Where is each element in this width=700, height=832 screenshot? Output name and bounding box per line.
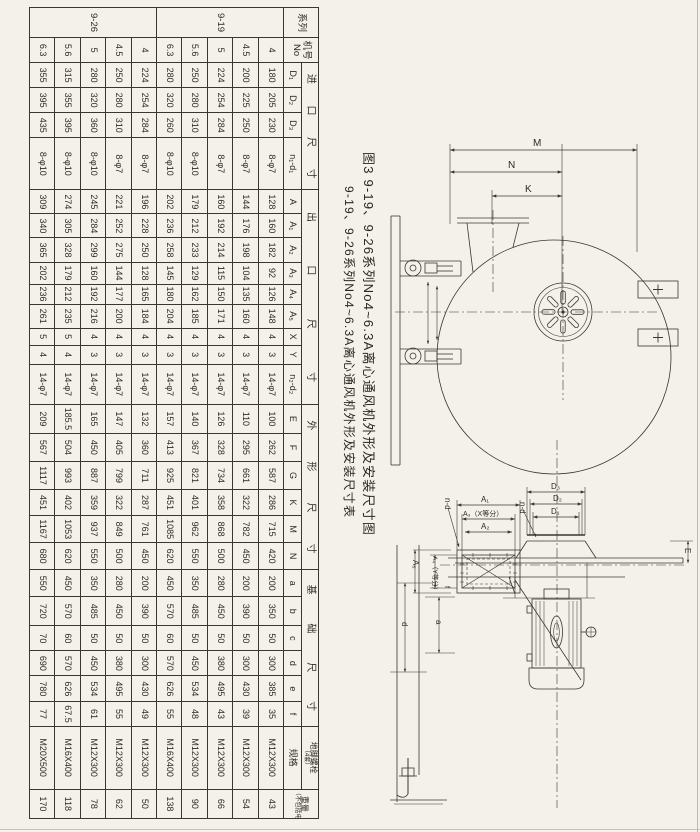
cell: 5	[30, 328, 55, 345]
page-edge-bottom	[0, 829, 700, 830]
header-col: A₃	[284, 262, 302, 284]
cell: 390	[233, 597, 258, 626]
cell: 430	[131, 676, 156, 702]
cell: 157	[157, 404, 182, 433]
mounting-bracket-top	[400, 260, 461, 276]
header-col: K	[284, 490, 302, 516]
cell: 320	[80, 88, 105, 113]
cell: 221	[106, 190, 131, 214]
cell: 734	[207, 461, 232, 489]
cell: 450	[182, 651, 207, 676]
cell: 202	[30, 262, 55, 284]
cell: 209	[30, 404, 55, 433]
cell: 4	[55, 345, 80, 364]
cell: 179	[55, 262, 80, 284]
cell: M12X300	[80, 726, 105, 789]
cell: 171	[207, 304, 232, 328]
cell: 355	[55, 88, 80, 113]
cell: 300	[233, 651, 258, 676]
cell: 570	[157, 597, 182, 626]
dim-label-a: a	[434, 620, 443, 625]
cell: 49	[131, 702, 156, 726]
cell: 55	[157, 702, 182, 726]
cell: 360	[131, 433, 156, 461]
header-col: b	[284, 597, 302, 626]
cell: 550	[182, 543, 207, 570]
cell: 212	[55, 284, 80, 304]
cell: 160	[207, 190, 232, 214]
cell: 50	[106, 626, 131, 651]
cell: M12X300	[131, 726, 156, 789]
header-group-5: 重量（不包括电机）	[284, 789, 319, 818]
model-no: 6.3	[30, 38, 55, 63]
cell: 50	[233, 626, 258, 651]
cell: 14-φ7	[157, 364, 182, 404]
cell: 405	[106, 433, 131, 461]
cell: 8-φ10	[182, 138, 207, 190]
dim-label-a4y: A₄（Y等分）	[431, 556, 440, 593]
cell: 8-φ7	[106, 138, 131, 190]
header-col: A₅	[284, 304, 302, 328]
cell: 450	[80, 433, 105, 461]
dim-label-f: f	[443, 586, 450, 588]
cell: 200	[106, 304, 131, 328]
cell: 5	[55, 328, 80, 345]
cell: 284	[207, 113, 232, 138]
cell: 212	[182, 214, 207, 238]
cell: 450	[80, 651, 105, 676]
cell: 4	[233, 328, 258, 345]
header-col: f	[284, 702, 302, 726]
model-no: 4	[258, 38, 283, 63]
cell: 720	[30, 597, 55, 626]
cell: 192	[80, 284, 105, 304]
cell: 128	[258, 190, 283, 214]
cell: 170	[30, 789, 55, 818]
series-name: 9-19	[157, 8, 284, 38]
cell: 280	[182, 88, 207, 113]
header-col: 规格	[284, 726, 302, 789]
cell: 8-φ10	[157, 138, 182, 190]
cell: 315	[55, 63, 80, 88]
cell: 435	[30, 113, 55, 138]
cell: 230	[258, 113, 283, 138]
cell: 260	[157, 113, 182, 138]
cell: 202	[157, 190, 182, 214]
cell: 236	[30, 284, 55, 304]
cell: 887	[80, 461, 105, 489]
cell: 145	[157, 262, 182, 284]
cell: M12X300	[182, 726, 207, 789]
cell: 495	[106, 676, 131, 702]
cell: 274	[55, 190, 80, 214]
cell: 450	[207, 597, 232, 626]
cell: 92	[258, 262, 283, 284]
cell: 993	[55, 461, 80, 489]
cell: 4	[80, 328, 105, 345]
cell: 8-φ7	[258, 138, 283, 190]
cell: 62	[106, 789, 131, 818]
cell: 39	[233, 702, 258, 726]
cell: 129	[182, 262, 207, 284]
cell: 380	[106, 651, 131, 676]
cell: 626	[157, 676, 182, 702]
cell: 495	[207, 676, 232, 702]
cell: 284	[131, 113, 156, 138]
cell: 184	[131, 304, 156, 328]
cell: 8-φ7	[131, 138, 156, 190]
cell: 115	[207, 262, 232, 284]
cell: 150	[207, 284, 232, 304]
cell: 284	[80, 214, 105, 238]
cell: 200	[131, 570, 156, 597]
cell: 570	[55, 597, 80, 626]
cell: 236	[157, 214, 182, 238]
cell: 35	[258, 702, 283, 726]
cell: 937	[80, 516, 105, 543]
cell: 50	[258, 626, 283, 651]
cell: 252	[106, 214, 131, 238]
cell: 205	[258, 88, 283, 113]
cell: 182	[258, 238, 283, 262]
cell: 451	[157, 490, 182, 516]
cell: 261	[30, 304, 55, 328]
cell: 286	[258, 490, 283, 516]
cell: M16X400	[157, 726, 182, 789]
cell: 500	[106, 543, 131, 570]
header-group-0: 进口尺寸	[302, 63, 319, 190]
cell: 3	[233, 345, 258, 364]
cell: 300	[258, 651, 283, 676]
outlet-flange	[457, 550, 520, 593]
cell: 275	[106, 238, 131, 262]
cell: 126	[207, 404, 232, 433]
cell: 216	[80, 304, 105, 328]
cell: 14-φ7	[182, 364, 207, 404]
cell: 534	[80, 676, 105, 702]
table-row: 52803203608-φ102452842991601922164314-φ7…	[80, 8, 105, 819]
table-row: 4.52002252508-φ71441761981041351604314-φ…	[233, 8, 258, 819]
cell: 295	[233, 433, 258, 461]
cell: 8-φ10	[55, 138, 80, 190]
cell: 309	[30, 190, 55, 214]
cell: 14-φ7	[207, 364, 232, 404]
table-caption: 9-19、9-26系列No4~6.3A离心通风机外形及安装尺寸表	[341, 186, 358, 518]
cell: 355	[30, 63, 55, 88]
cell: 4	[182, 328, 207, 345]
cell: 485	[80, 597, 105, 626]
cell: 3	[182, 345, 207, 364]
cell: M12X300	[106, 726, 131, 789]
header-col: D₁	[284, 63, 302, 88]
header-col: e	[284, 676, 302, 702]
cell: M16X400	[55, 726, 80, 789]
cell: 233	[182, 238, 207, 262]
cell: 420	[258, 543, 283, 570]
cell: 962	[182, 516, 207, 543]
cell: 60	[157, 626, 182, 651]
dim-label-a3x: A₃（X等分）	[463, 509, 503, 518]
cell: 3	[106, 345, 131, 364]
cell: 160	[233, 304, 258, 328]
cell: 310	[106, 113, 131, 138]
cell: 761	[131, 516, 156, 543]
dim-label-nd-left: n-d	[443, 498, 452, 510]
cell: 204	[157, 304, 182, 328]
cell: 413	[157, 433, 182, 461]
cell: 14-φ7	[131, 364, 156, 404]
cell: 367	[182, 433, 207, 461]
cell: 450	[233, 543, 258, 570]
cell: 235	[55, 304, 80, 328]
header-series: 系列	[284, 8, 319, 38]
cell: 250	[233, 113, 258, 138]
cell: 50	[182, 626, 207, 651]
header-col: c	[284, 626, 302, 651]
cell: 14-φ7	[233, 364, 258, 404]
cell: 3	[131, 345, 156, 364]
cell: 322	[106, 490, 131, 516]
cell: 587	[258, 461, 283, 489]
cell: 177	[106, 284, 131, 304]
cell: 620	[157, 543, 182, 570]
cell: 711	[131, 461, 156, 489]
cell: 280	[106, 88, 131, 113]
cell: 144	[233, 190, 258, 214]
cell: M12X300	[207, 726, 232, 789]
fan-front-view	[391, 144, 678, 474]
cell: 280	[157, 63, 182, 88]
cell: 350	[182, 570, 207, 597]
cell: 310	[182, 113, 207, 138]
cell: 138	[157, 789, 182, 818]
cell: 61	[80, 702, 105, 726]
cell: 67.5	[55, 702, 80, 726]
table-row: 5.63153553958-φ102743053281792122355414-…	[55, 8, 80, 819]
dim-label-d: d	[400, 622, 409, 626]
cell: 214	[207, 238, 232, 262]
cell: 200	[258, 570, 283, 597]
cell: 450	[157, 570, 182, 597]
cell: 165	[131, 284, 156, 304]
header-col: Y	[284, 345, 302, 364]
cell: 254	[131, 88, 156, 113]
cell: 50	[207, 626, 232, 651]
cell: 320	[157, 88, 182, 113]
header-col: A	[284, 190, 302, 214]
cell: 4	[207, 328, 232, 345]
header-model-no: 机号 No	[284, 38, 319, 63]
cell: 450	[55, 570, 80, 597]
page-edge-right	[697, 0, 698, 832]
cell: 799	[106, 461, 131, 489]
page: 系列机号 No进口尺寸出口尺寸外形尺寸基础尺寸地脚螺栓（4套）重量（不包括电机）…	[0, 0, 700, 832]
header-col: A₂	[284, 238, 302, 262]
cell: 70	[30, 626, 55, 651]
cell: 224	[207, 63, 232, 88]
cell: 360	[80, 113, 105, 138]
cell: 50	[131, 626, 156, 651]
cell: 147	[106, 404, 131, 433]
dim-label-nd-right: n-d	[518, 502, 527, 514]
cell: 500	[207, 543, 232, 570]
dim-label-a2: A₂	[481, 522, 489, 531]
cell: 402	[55, 490, 80, 516]
cell: 185	[182, 304, 207, 328]
cell: 245	[80, 190, 105, 214]
table-row: 6.32803202608-φ102022362581451802044314-…	[157, 8, 182, 819]
cell: 180	[258, 63, 283, 88]
dim-label-d2: D₂	[553, 494, 562, 503]
cell: 3	[157, 345, 182, 364]
cell: 4	[106, 328, 131, 345]
cell: M12X300	[233, 726, 258, 789]
cell: 849	[106, 516, 131, 543]
cell: 8-φ10	[80, 138, 105, 190]
cell: 228	[131, 214, 156, 238]
cell: 395	[55, 113, 80, 138]
header-col: D₂	[284, 88, 302, 113]
header-col: F	[284, 433, 302, 461]
cell: 1167	[30, 516, 55, 543]
cell: 305	[55, 214, 80, 238]
cell: 680	[30, 543, 55, 570]
cell: 160	[80, 262, 105, 284]
cell: 385	[258, 676, 283, 702]
header-col: X	[284, 328, 302, 345]
model-no: 5.6	[55, 38, 80, 63]
header-col: D₃	[284, 113, 302, 138]
cell: 100	[258, 404, 283, 433]
cell: 104	[233, 262, 258, 284]
cell: 567	[30, 433, 55, 461]
cell: 626	[55, 676, 80, 702]
header-col: n₂-d₂	[284, 364, 302, 404]
cell: 570	[55, 651, 80, 676]
dim-label-d1: D₁	[551, 507, 560, 516]
table-row: 52242542848-φ71601922141151501714314-φ71…	[207, 8, 232, 819]
cell: 715	[258, 516, 283, 543]
cell: 14-φ7	[30, 364, 55, 404]
cell: 395	[30, 88, 55, 113]
cell: 690	[30, 651, 55, 676]
cell: 118	[55, 789, 80, 818]
cell: 250	[131, 238, 156, 262]
mounting-bracket-bottom	[400, 348, 461, 364]
cell: 14-φ7	[55, 364, 80, 404]
cell: 14-φ7	[258, 364, 283, 404]
cell: 77	[30, 702, 55, 726]
header-col: A₄	[284, 284, 302, 304]
model-no: 5	[80, 38, 105, 63]
cell: 485	[182, 597, 207, 626]
cell: 821	[182, 461, 207, 489]
cell: 550	[80, 543, 105, 570]
cell: 180	[157, 284, 182, 304]
cell: 430	[233, 676, 258, 702]
cell: 3	[207, 345, 232, 364]
cell: 148	[258, 304, 283, 328]
table-row: 5.62502803108-φ101792122331291621854314-…	[182, 8, 207, 819]
header-col: N	[284, 543, 302, 570]
dim-label-n: N	[508, 160, 515, 171]
cell: 620	[55, 543, 80, 570]
cell: 1117	[30, 461, 55, 489]
dimension-table: 系列机号 No进口尺寸出口尺寸外形尺寸基础尺寸地脚螺栓（4套）重量（不包括电机）…	[29, 7, 319, 819]
cell: 43	[258, 789, 283, 818]
cell: 198	[233, 238, 258, 262]
cell: 48	[182, 702, 207, 726]
dim-label-m: M	[533, 138, 541, 149]
cell: 451	[30, 490, 55, 516]
motor	[527, 589, 596, 689]
cell: 280	[80, 63, 105, 88]
table-row: 9-2642242542848-φ71962282501281651844314…	[131, 8, 156, 819]
dim-label-d3: D₃	[551, 482, 560, 491]
model-no: 5.6	[182, 38, 207, 63]
cell: 4	[30, 345, 55, 364]
cell: 3	[258, 345, 283, 364]
cell: 780	[30, 676, 55, 702]
cell: 176	[233, 214, 258, 238]
figure-caption: 图3 9-19、9-26系列No4~6.3A离心通风机外形及安装尺寸图	[360, 152, 379, 536]
cell: 401	[182, 490, 207, 516]
cell: 328	[55, 238, 80, 262]
header-col: A₁	[284, 214, 302, 238]
cell: 126	[258, 284, 283, 304]
dim-label-a1: A₁	[481, 495, 489, 504]
cell: 450	[131, 543, 156, 570]
cell: 1053	[55, 516, 80, 543]
cell: M20X500	[30, 726, 55, 789]
cell: 570	[157, 651, 182, 676]
cell: 4	[131, 328, 156, 345]
fan-drawing: M N K D₃ D₂ D₁ A₁ A₃（X等分） A₂ n-d n-d A₅ …	[385, 0, 700, 832]
header-group-3: 基础尺寸	[302, 570, 319, 726]
model-no: 4.5	[233, 38, 258, 63]
cell: 8-φ10	[30, 138, 55, 190]
table-wrapper: 系列机号 No进口尺寸出口尺寸外形尺寸基础尺寸地脚螺栓（4套）重量（不包括电机）…	[29, 7, 319, 819]
cell: 258	[157, 238, 182, 262]
cell: 8-φ7	[207, 138, 232, 190]
header-col: n₁-d₁	[284, 138, 302, 190]
cell: 254	[207, 88, 232, 113]
cell: 359	[80, 490, 105, 516]
cell: 140	[182, 404, 207, 433]
cell: 128	[131, 262, 156, 284]
header-group-4: 地脚螺栓（4套）	[302, 726, 319, 789]
cell: 55	[106, 702, 131, 726]
cell: 179	[182, 190, 207, 214]
cell: 135	[233, 284, 258, 304]
cell: 504	[55, 433, 80, 461]
cell: 185.5	[55, 404, 80, 433]
cell: 54	[233, 789, 258, 818]
cell: 280	[207, 570, 232, 597]
cell: 868	[207, 516, 232, 543]
cell: M12X300	[258, 726, 283, 789]
cell: 50	[80, 626, 105, 651]
header-col: a	[284, 570, 302, 597]
dim-label-e: E	[683, 548, 692, 553]
cell: 287	[131, 490, 156, 516]
cell: 192	[207, 214, 232, 238]
cell: 380	[207, 651, 232, 676]
cell: 550	[30, 570, 55, 597]
table-row: 4.52502803108-φ72212522751441772004314-φ…	[106, 8, 131, 819]
cell: 165	[80, 404, 105, 433]
cell: 661	[233, 461, 258, 489]
